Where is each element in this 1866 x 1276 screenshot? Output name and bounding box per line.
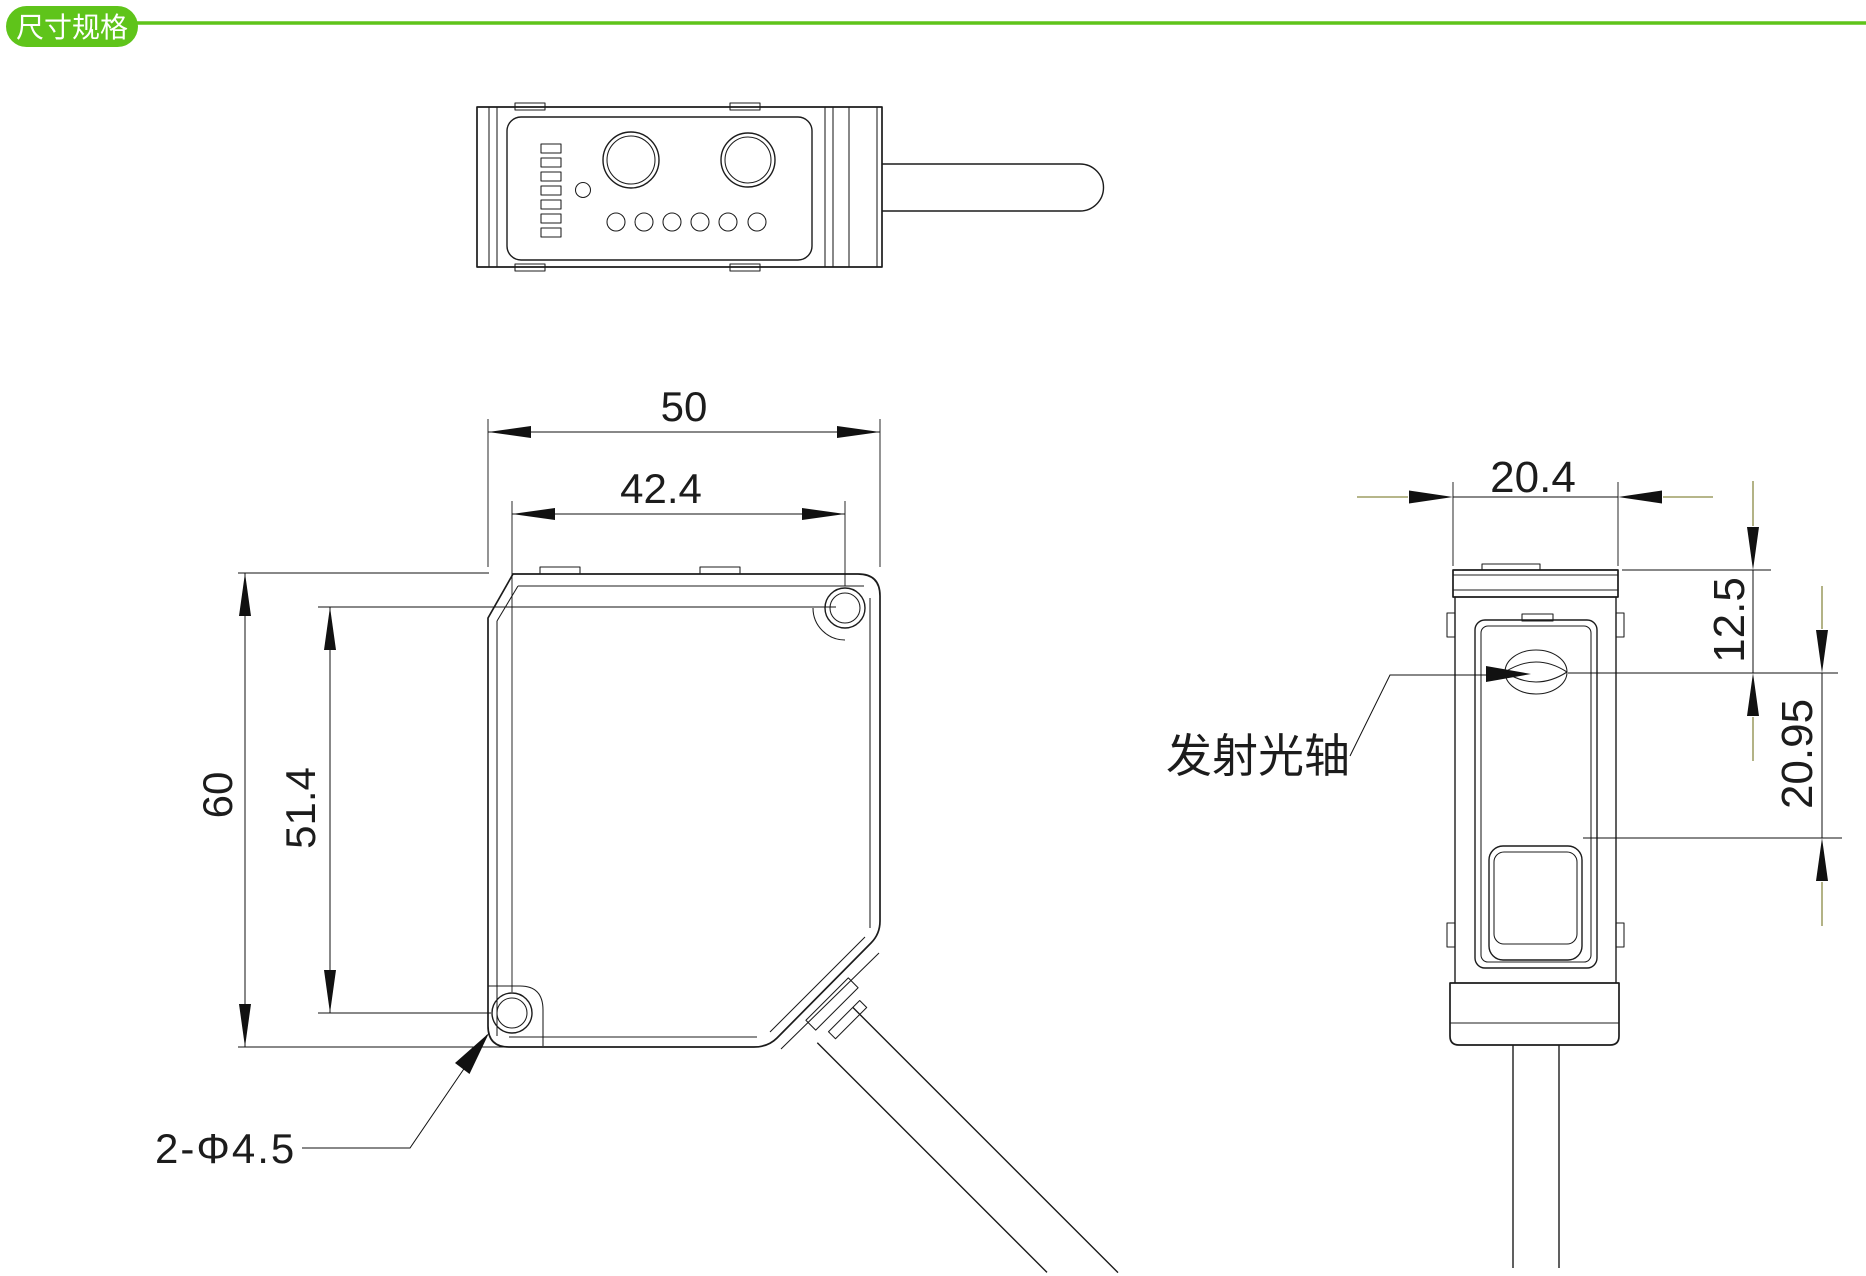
arrowhead-top [1816, 630, 1828, 673]
receiver-window-outer [1489, 846, 1582, 960]
receiver-window [1489, 846, 1582, 960]
status-led [576, 183, 591, 198]
top-view-left-endcap-lines [489, 107, 497, 267]
led-bar-segment [541, 200, 561, 209]
arrowhead-left [488, 426, 531, 438]
gland-face-line [781, 953, 879, 1049]
arrowhead-bottom [239, 1004, 251, 1047]
mount-hole-top-right [813, 588, 865, 640]
arrowhead-top [1747, 527, 1759, 570]
dim-value: 50 [661, 383, 708, 430]
mount-hole-outer [492, 993, 532, 1033]
dim-hole-span-51-4: 51.4 [277, 607, 836, 1013]
leader-line [302, 1035, 487, 1148]
dim-value: 42.4 [620, 465, 702, 512]
dim-height-60: 60 [194, 573, 505, 1047]
led-bar-segment [541, 214, 561, 223]
dim-value: 20.95 [1773, 699, 1822, 809]
receiver-window-inner [1494, 852, 1577, 944]
side-view-bottom-cap [1450, 983, 1619, 1045]
side-view-top-cap [1453, 570, 1618, 597]
indicator-row [607, 213, 766, 231]
indicator-circle [691, 213, 709, 231]
dim-value: 51.4 [277, 767, 324, 849]
cable-top-view [882, 164, 1104, 211]
gland-block-2 [829, 1001, 867, 1039]
side-tab-upper-right [1616, 613, 1624, 637]
side-tab-upper-left [1447, 613, 1455, 637]
receiver-lens-top [721, 133, 775, 187]
emitter-lens-outer [603, 132, 659, 188]
cable-gland [781, 953, 879, 1049]
receiver-lens-inner [725, 137, 771, 183]
led-bar-segment [541, 228, 561, 237]
front-view [488, 567, 1118, 1273]
arrowhead-right [802, 508, 845, 520]
led-bar [541, 144, 561, 237]
receiver-lens-outer [721, 133, 775, 187]
cable-side-view [1513, 1045, 1559, 1268]
mount-hole-outer [825, 588, 865, 628]
header-badge-label: 尺寸规格 [16, 12, 128, 43]
label-emission-axis: 发射光轴 [1166, 666, 1531, 782]
side-tab-lower-right [1616, 923, 1624, 947]
dim-value: 12.5 [1705, 577, 1754, 663]
top-view-right-endcap-lines [825, 107, 877, 267]
dimension-drawing-page: 尺寸规格 [0, 0, 1866, 1276]
indicator-circle [663, 213, 681, 231]
side-view-top-tab [1482, 564, 1540, 570]
cable-front-view [817, 1007, 1118, 1272]
top-view-panel [507, 117, 812, 260]
emission-axis-label: 发射光轴 [1166, 730, 1350, 782]
arrowhead-bottom [1816, 838, 1828, 881]
dim-hole-span-42-4: 42.4 [512, 465, 845, 992]
side-view [1447, 564, 1624, 1268]
side-tab-lower-left [1447, 923, 1455, 947]
mount-hole-boss-arc [813, 608, 845, 640]
arrowhead-bottom [1747, 673, 1759, 716]
dim-value: 60 [194, 772, 241, 819]
dimension-drawing: 尺寸规格 [0, 0, 1866, 1276]
front-view-top-tab-right [700, 567, 740, 574]
side-view-body-sides [1455, 597, 1616, 983]
arrowhead-right [1618, 491, 1662, 504]
dim-value: 20.4 [1490, 453, 1576, 502]
front-view-body [488, 574, 880, 1047]
led-bar-segment [541, 172, 561, 181]
leader-arrowhead [455, 1033, 489, 1074]
arrowhead-left [512, 508, 555, 520]
side-dimensions: 20.4 12.5 20.95 发射光轴 [1166, 453, 1842, 926]
top-view [477, 103, 1104, 271]
front-dimensions: 50 42.4 60 51.4 2-Φ4.5 [155, 383, 880, 1172]
emitter-lens-inner [607, 136, 655, 184]
leader-line [1350, 675, 1486, 756]
led-bar-segment [541, 186, 561, 195]
top-view-body [477, 107, 882, 267]
leader-arrowhead [1486, 666, 1531, 682]
led-bar-segment [541, 144, 561, 153]
mount-hole-inner [830, 593, 860, 623]
gland-block-1 [806, 978, 858, 1030]
indicator-circle [607, 213, 625, 231]
holes-label: 2-Φ4.5 [155, 1125, 296, 1172]
emitter-lens-top [603, 132, 659, 188]
label-mount-holes: 2-Φ4.5 [155, 1033, 489, 1172]
arrowhead-right [837, 426, 880, 438]
arrowhead-top [324, 607, 336, 650]
front-view-inner-edges [497, 586, 870, 1037]
side-view-top-cap-lines [1453, 575, 1618, 590]
indicator-circle [748, 213, 766, 231]
header: 尺寸规格 [6, 6, 1866, 47]
mount-hole-inner [497, 998, 527, 1028]
indicator-circle [719, 213, 737, 231]
indicator-circle [635, 213, 653, 231]
arrowhead-top [239, 573, 251, 616]
front-view-top-tab-left [540, 567, 580, 574]
arrowhead-left [1409, 491, 1453, 504]
extension-lines [318, 607, 836, 1013]
arrowhead-bottom [324, 970, 336, 1013]
dim-width-20-4: 20.4 [1357, 453, 1713, 566]
led-bar-segment [541, 158, 561, 167]
